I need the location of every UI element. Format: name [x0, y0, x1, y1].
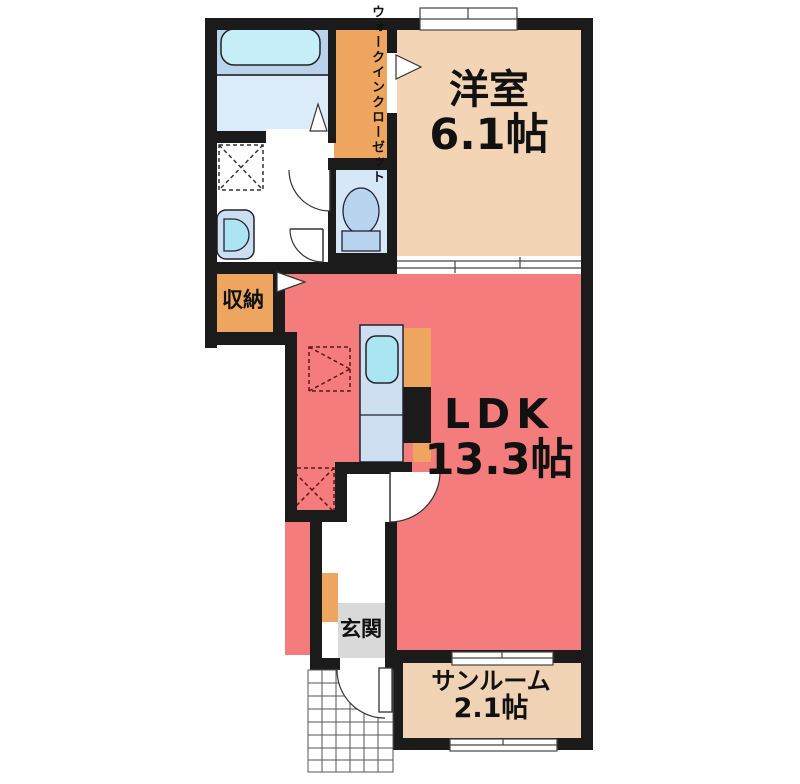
washbasin-icon [217, 210, 254, 259]
washroom-door-icon [290, 229, 323, 262]
sunroom-name: サンルーム [400, 668, 582, 694]
kitchen-sink-icon [366, 336, 398, 383]
sunroom-bottom-window [450, 739, 557, 751]
shoe-cabinet [320, 573, 338, 622]
wall-bath-bottom [205, 131, 270, 143]
sliding-door-western-ldk [397, 256, 581, 274]
sunroom-label: サンルーム 2.1帖 [400, 668, 582, 724]
western-room-name: 洋室 [397, 68, 581, 112]
front-door-gap [340, 658, 385, 672]
wall-storage-bottom [205, 332, 297, 345]
floorplan: 洋室 6.1帖 LDK 13.3帖 サンルーム 2.1帖 ウォークイン クローゼ… [0, 0, 800, 784]
toilet-icon [342, 188, 380, 251]
wic-label-col1: ウォークイン [334, 5, 388, 95]
wall-right [581, 18, 593, 750]
ldk-label: LDK 13.3帖 [415, 392, 583, 484]
wall-ldk-left [285, 345, 297, 515]
entrance-label: 玄関 [334, 618, 388, 641]
wall-kitchen-side [335, 462, 347, 522]
ldk-name: LDK [415, 392, 583, 437]
bathtub-icon [221, 29, 320, 65]
wall-hall-left [310, 522, 322, 672]
hallway-doorway [347, 472, 390, 522]
western-room-top-window [420, 8, 517, 30]
sunroom-size: 2.1帖 [400, 694, 582, 724]
washing-machine-area-icon [219, 145, 263, 190]
toilet-door-icon [289, 170, 330, 211]
western-room-size: 6.1帖 [397, 112, 581, 159]
refrigerator-area [403, 328, 431, 387]
ldk-size: 13.3帖 [415, 437, 583, 484]
storage-label: 収納 [211, 289, 275, 312]
walk-in-closet-label: ウォークイン クローゼット [334, 30, 388, 160]
wall-washroom-bottom [205, 262, 397, 274]
western-room-label: 洋室 6.1帖 [397, 68, 581, 159]
wall-top [205, 18, 593, 30]
bathroom-floor-lower [213, 75, 328, 131]
wic-label-col2: クローゼット [334, 95, 388, 185]
sunroom-top-window [452, 652, 553, 665]
